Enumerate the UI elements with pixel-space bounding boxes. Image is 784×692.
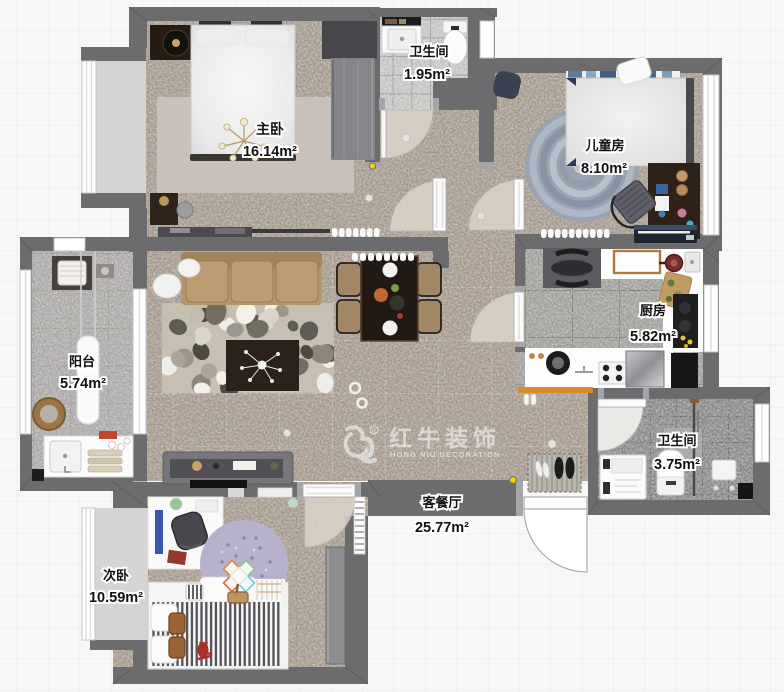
- svg-text:5.82m²: 5.82m²: [630, 329, 676, 345]
- svg-text:主卧: 主卧: [256, 121, 284, 137]
- svg-text:红牛装饰: 红牛装饰: [389, 425, 501, 451]
- svg-text:客餐厅: 客餐厅: [422, 495, 461, 510]
- svg-text:厨房: 厨房: [640, 303, 666, 318]
- svg-text:R: R: [372, 429, 377, 435]
- svg-text:1.95m²: 1.95m²: [404, 67, 450, 83]
- svg-text:HONG NIU DECORATION: HONG NIU DECORATION: [390, 450, 501, 459]
- svg-text:儿童房: 儿童房: [584, 138, 624, 153]
- svg-text:16.14m²: 16.14m²: [243, 144, 297, 160]
- svg-text:25.77m²: 25.77m²: [415, 520, 469, 536]
- svg-text:卫生间: 卫生间: [657, 433, 696, 448]
- svg-text:8.10m²: 8.10m²: [581, 161, 627, 177]
- svg-text:次卧: 次卧: [103, 568, 129, 583]
- svg-text:3.75m²: 3.75m²: [654, 457, 700, 473]
- svg-text:卫生间: 卫生间: [409, 44, 448, 59]
- svg-text:5.74m²: 5.74m²: [60, 376, 106, 392]
- svg-text:阳台: 阳台: [69, 354, 95, 369]
- svg-text:10.59m²: 10.59m²: [89, 590, 143, 606]
